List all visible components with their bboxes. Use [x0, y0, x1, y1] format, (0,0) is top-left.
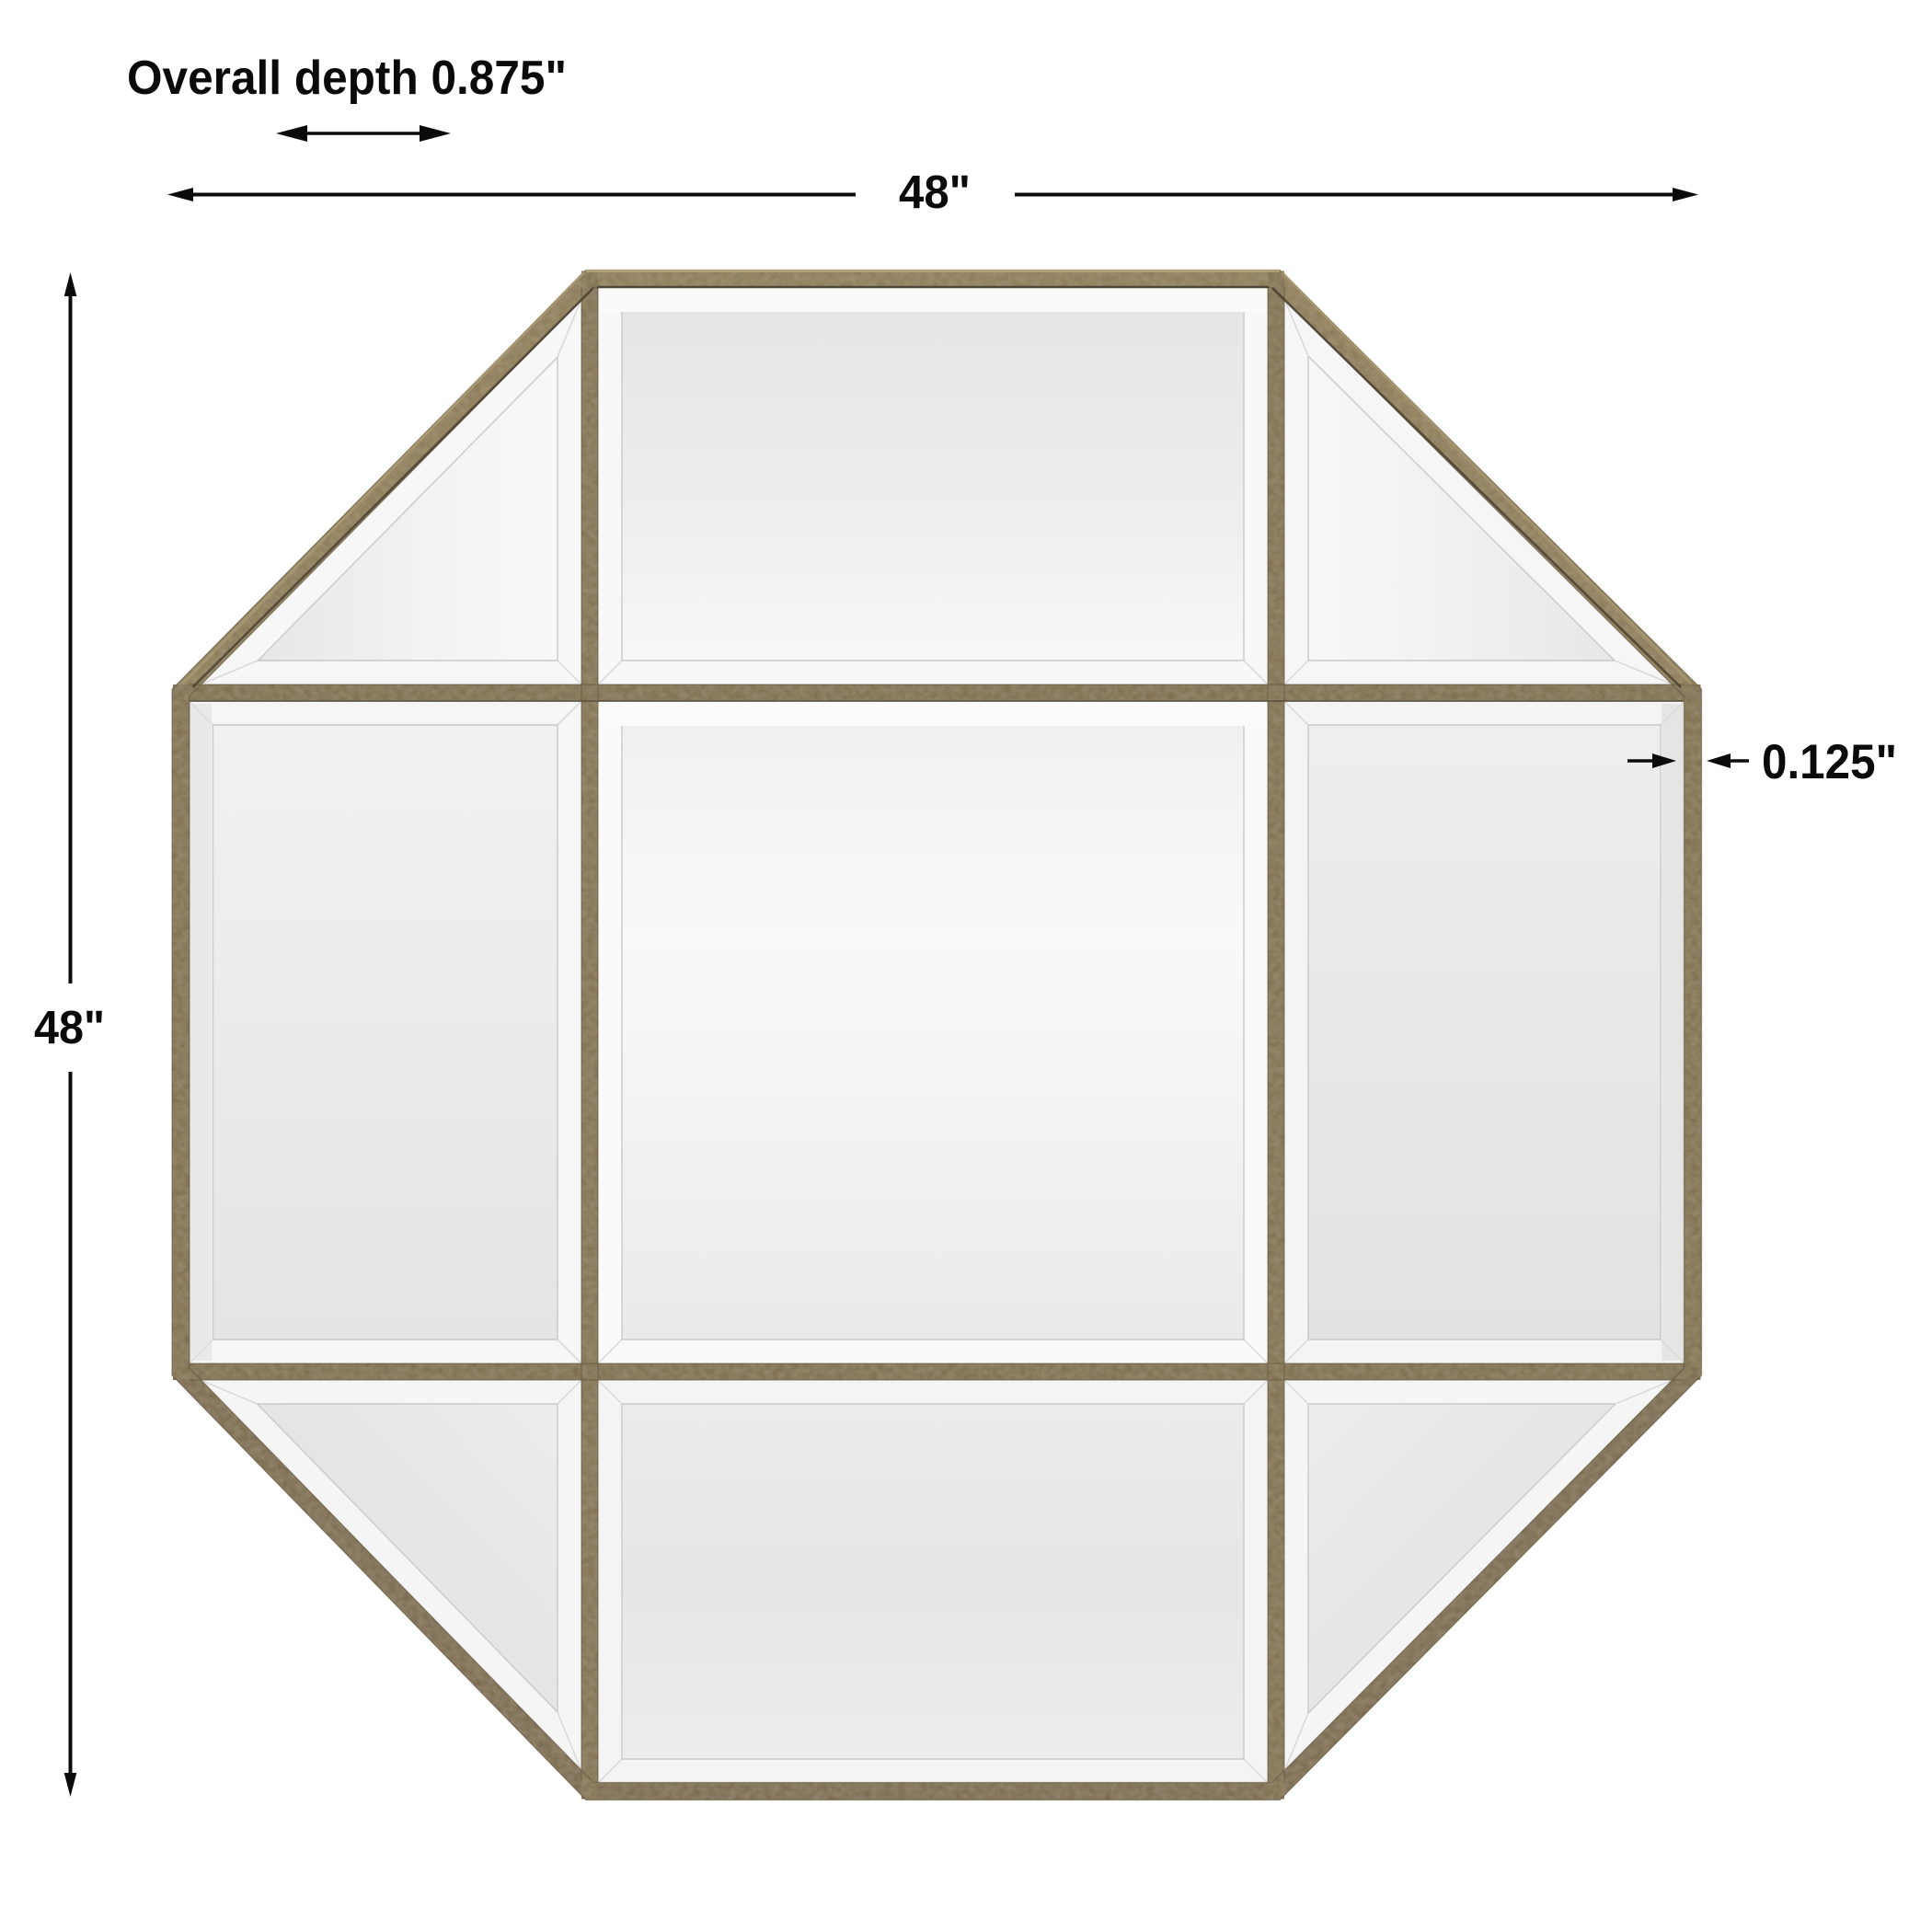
svg-text:48": 48": [899, 166, 971, 218]
svg-text:0.125": 0.125": [1762, 735, 1897, 789]
svg-text:48": 48": [34, 1001, 105, 1053]
svg-text:Overall depth 0.875": Overall depth 0.875": [127, 52, 567, 105]
